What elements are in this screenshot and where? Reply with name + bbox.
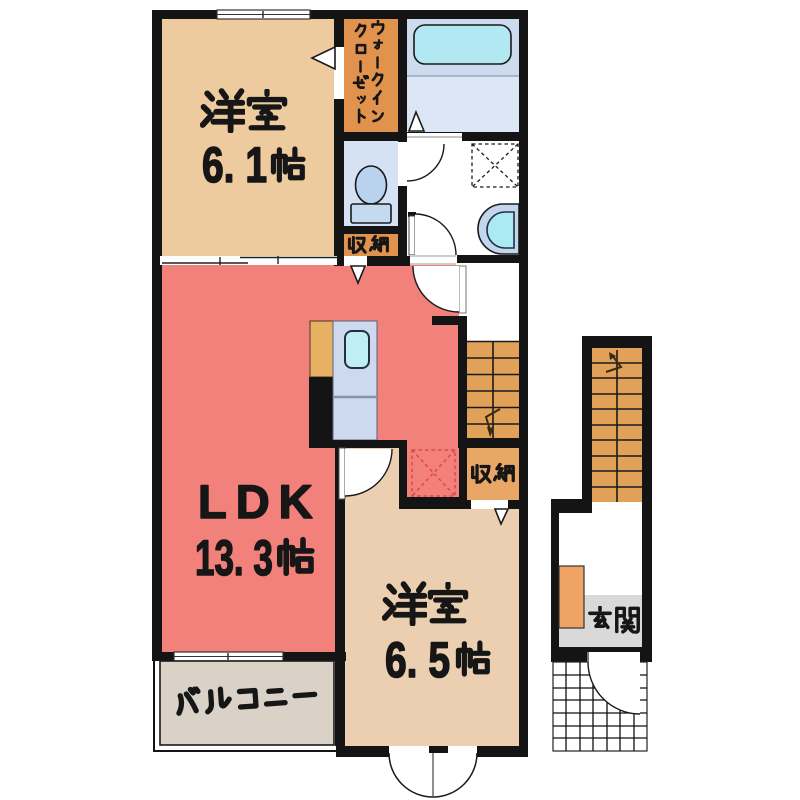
svg-text:13. 3: 13. 3 — [195, 531, 273, 587]
svg-text:6. 5: 6. 5 — [385, 631, 450, 688]
svg-text:6. 1: 6. 1 — [202, 136, 267, 193]
svg-text:LDK: LDK — [198, 475, 322, 528]
